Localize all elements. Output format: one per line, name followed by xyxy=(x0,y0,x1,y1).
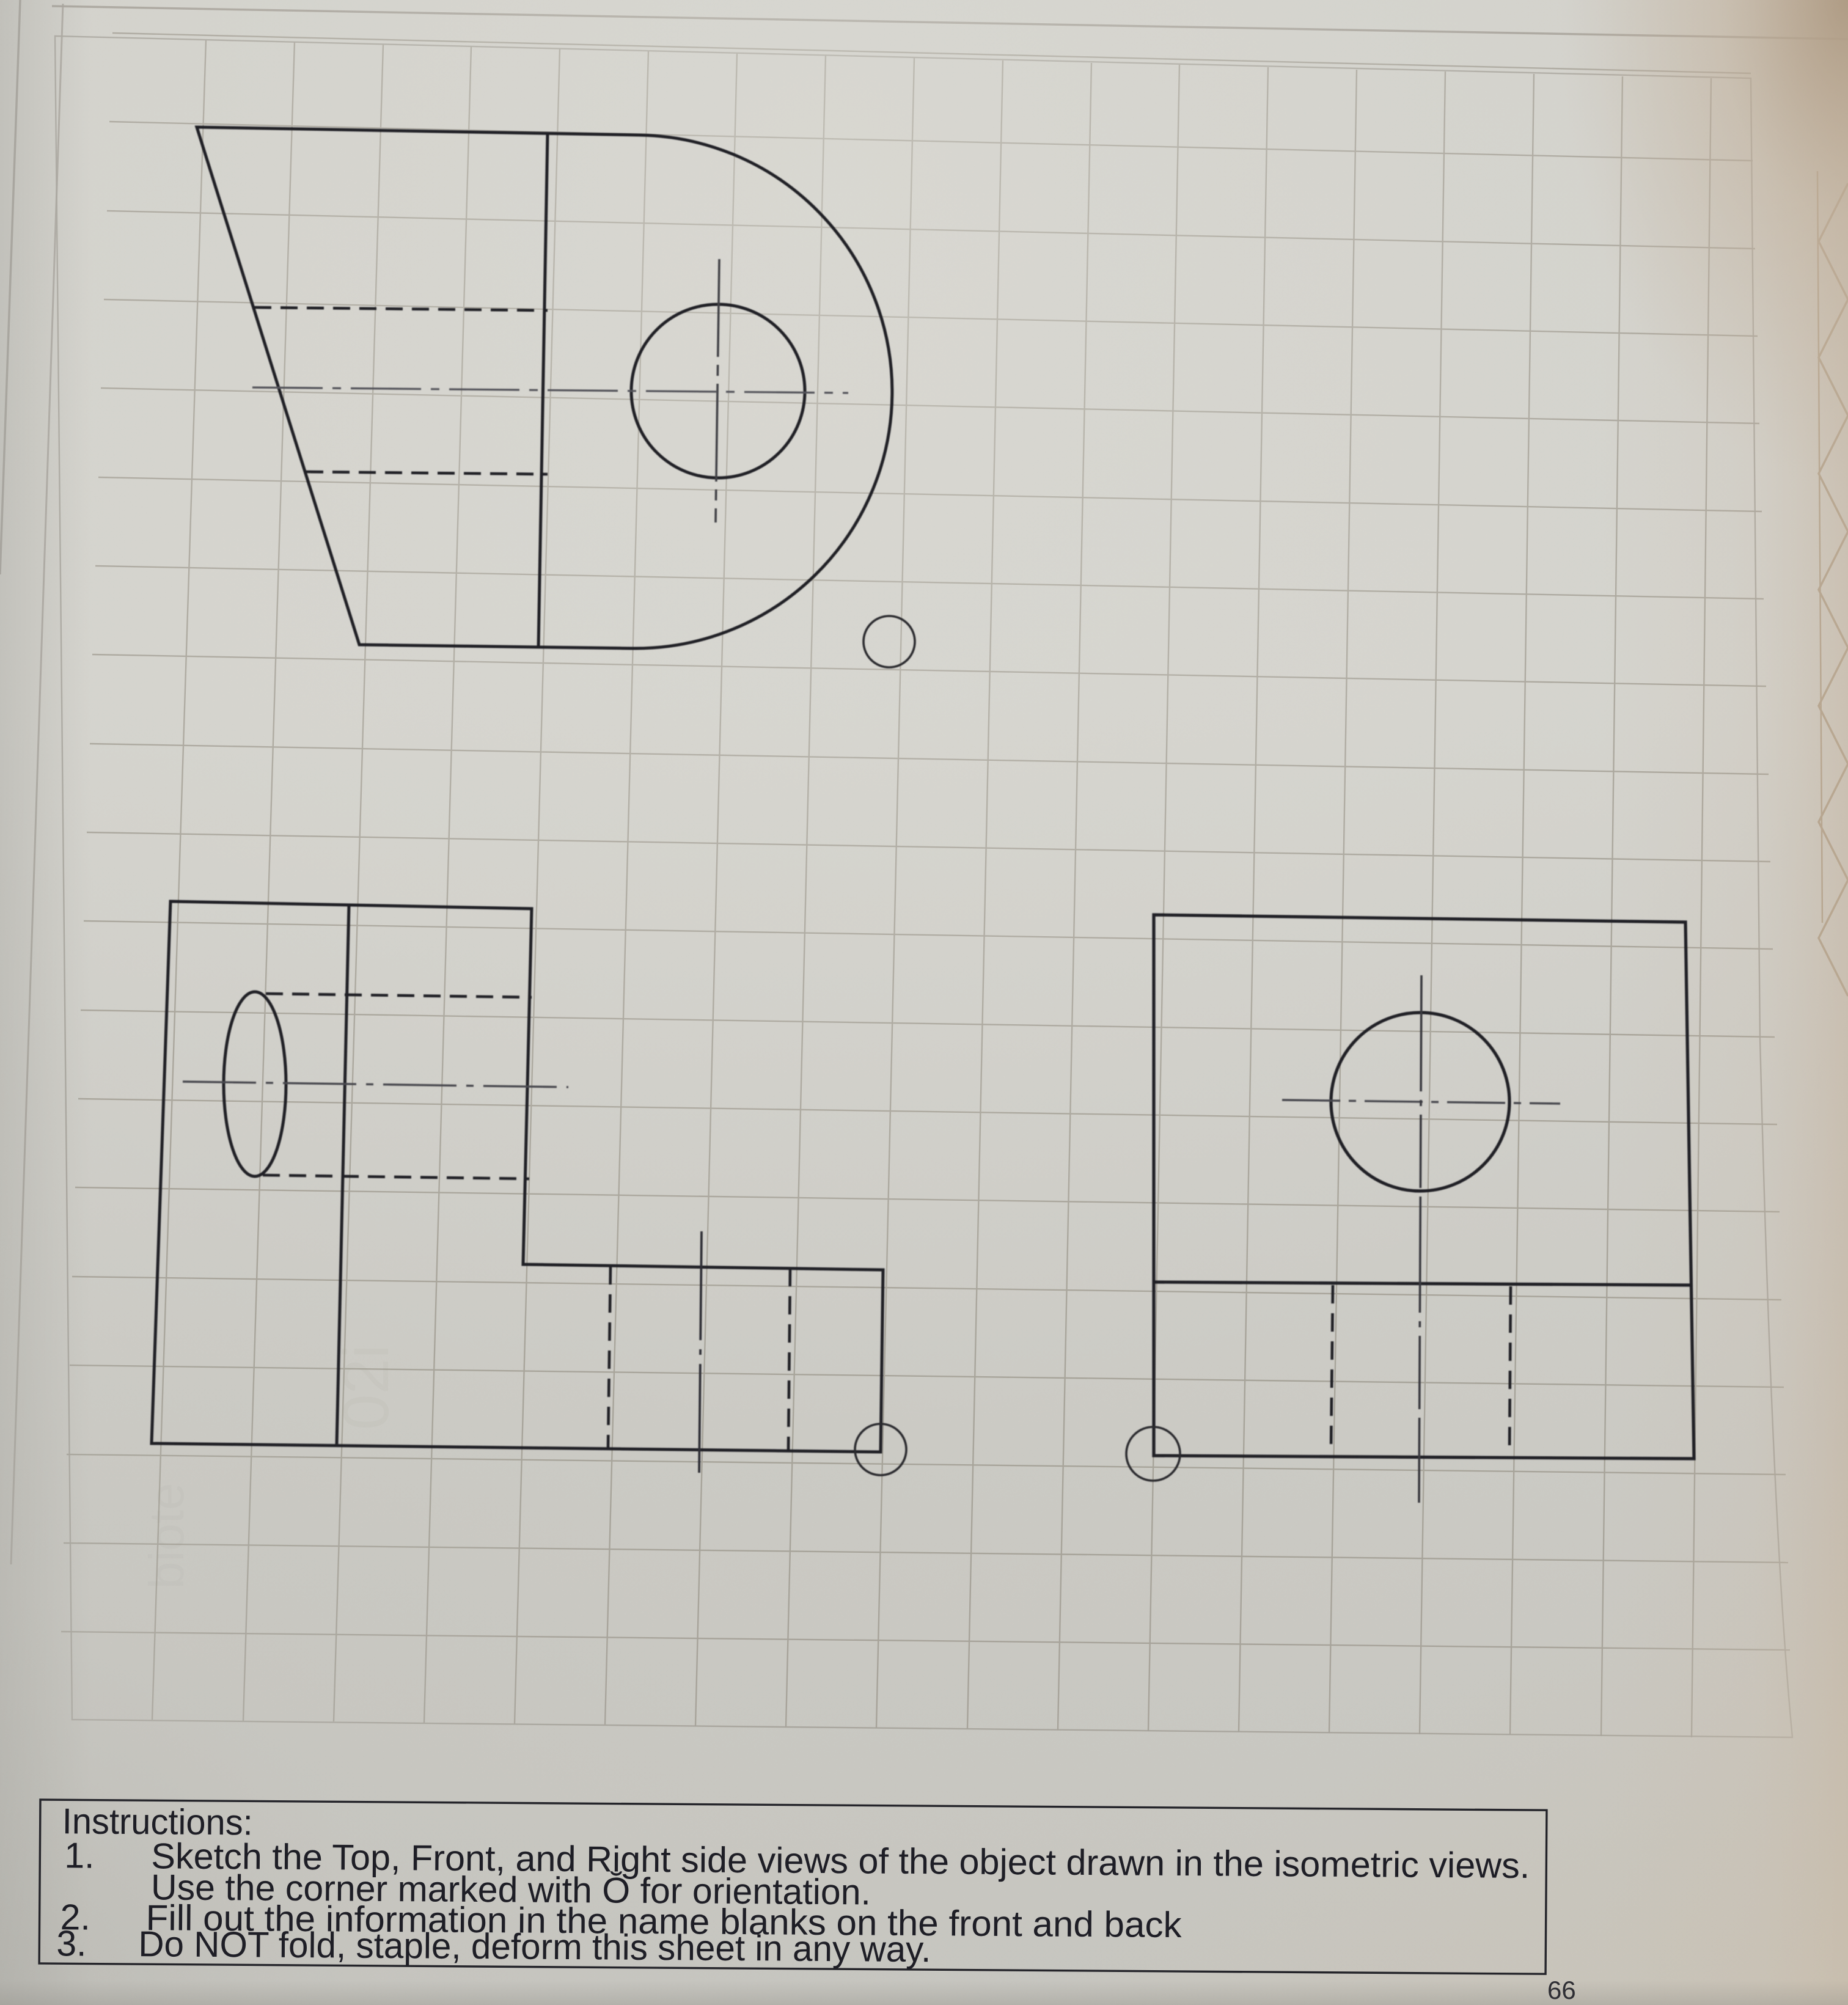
svg-text:3.: 3. xyxy=(56,1923,87,1963)
svg-text:Do NOT fold, staple, deform th: Do NOT fold, staple, deform this sheet i… xyxy=(138,1924,931,1970)
svg-text:1.: 1. xyxy=(64,1835,95,1875)
svg-text:66: 66 xyxy=(1547,1976,1576,2004)
